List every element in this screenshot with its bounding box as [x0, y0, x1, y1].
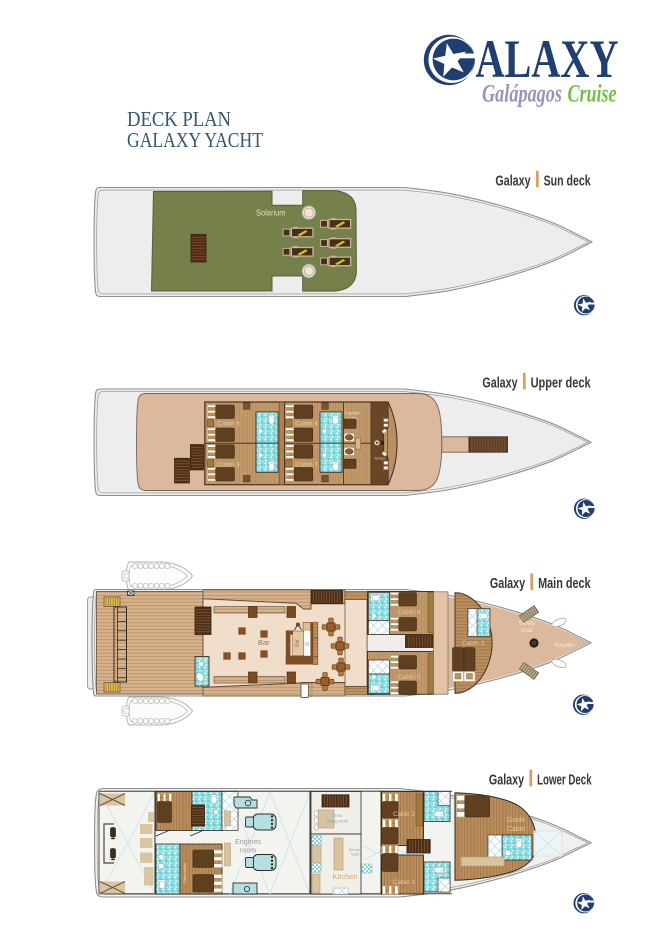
svg-text:Dining room: Dining room — [326, 819, 349, 824]
svg-text:Galaxy: Galaxy — [482, 376, 517, 392]
svg-text:Cabin 8: Cabin 8 — [217, 421, 240, 428]
svg-text:Guide: Guide — [507, 817, 526, 824]
svg-text:Sun deck: Sun deck — [544, 174, 592, 190]
svg-text:GALAXY YACHT: GALAXY YACHT — [127, 128, 263, 152]
svg-text:Captain: Captain — [344, 411, 360, 416]
svg-text:Safety: Safety — [518, 621, 535, 627]
svg-text:Cabin 5: Cabin 5 — [398, 674, 421, 681]
svg-text:Cabin 4: Cabin 4 — [398, 609, 421, 616]
svg-text:Cabin 9: Cabin 9 — [217, 461, 240, 468]
svg-text:Bar: Bar — [295, 639, 301, 647]
svg-text:Crew cabin: Crew cabin — [182, 863, 187, 883]
svg-text:Galápagos: Galápagos — [482, 81, 562, 108]
svg-text:Cruise: Cruise — [568, 81, 617, 108]
svg-text:Galaxy: Galaxy — [489, 773, 524, 789]
svg-text:Galaxy: Galaxy — [495, 174, 530, 190]
svg-text:Cabin: Cabin — [507, 826, 525, 833]
svg-text:hatch: hatch — [351, 853, 360, 857]
svg-text:Boutique: Boutique — [310, 683, 314, 697]
svg-text:Galaxy: Galaxy — [490, 576, 525, 592]
svg-text:Cabin 6: Cabin 6 — [295, 421, 318, 428]
svg-text:Cabin 7: Cabin 7 — [295, 461, 318, 468]
svg-text:Cabin 1: Cabin 1 — [393, 879, 415, 886]
svg-text:Bar: Bar — [258, 638, 270, 647]
svg-text:Lower Deck: Lower Deck — [537, 773, 592, 789]
svg-text:Bridge: Bridge — [375, 457, 386, 461]
svg-text:Crew: Crew — [332, 813, 343, 818]
svg-text:room: room — [240, 846, 256, 855]
svg-text:Main deck: Main deck — [538, 576, 591, 592]
svg-text:Solarium: Solarium — [256, 209, 286, 218]
svg-text:Serving: Serving — [349, 848, 361, 852]
svg-text:boat: boat — [521, 628, 533, 634]
svg-text:Cabin 3: Cabin 3 — [462, 640, 485, 647]
svg-text:Upper deck: Upper deck — [531, 376, 592, 392]
svg-text:Kitchen: Kitchen — [332, 872, 357, 881]
svg-text:Kayaks: Kayaks — [555, 642, 575, 649]
svg-text:Cabin 2: Cabin 2 — [393, 811, 415, 818]
